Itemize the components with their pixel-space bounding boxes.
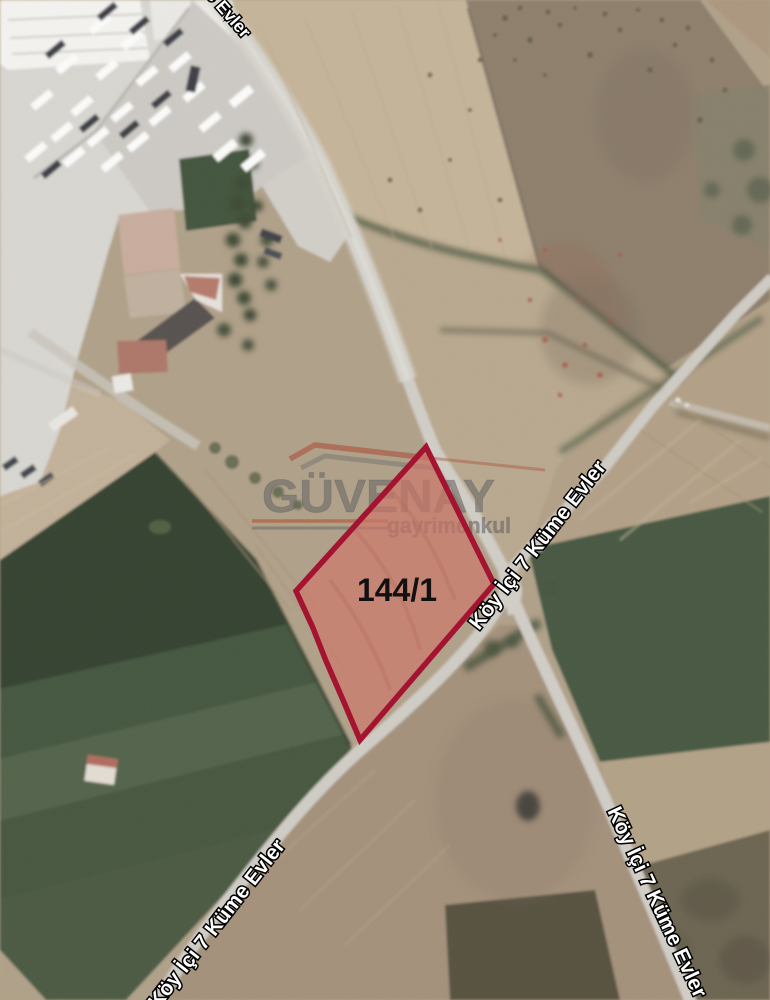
svg-text:144/1: 144/1 [357,572,437,608]
